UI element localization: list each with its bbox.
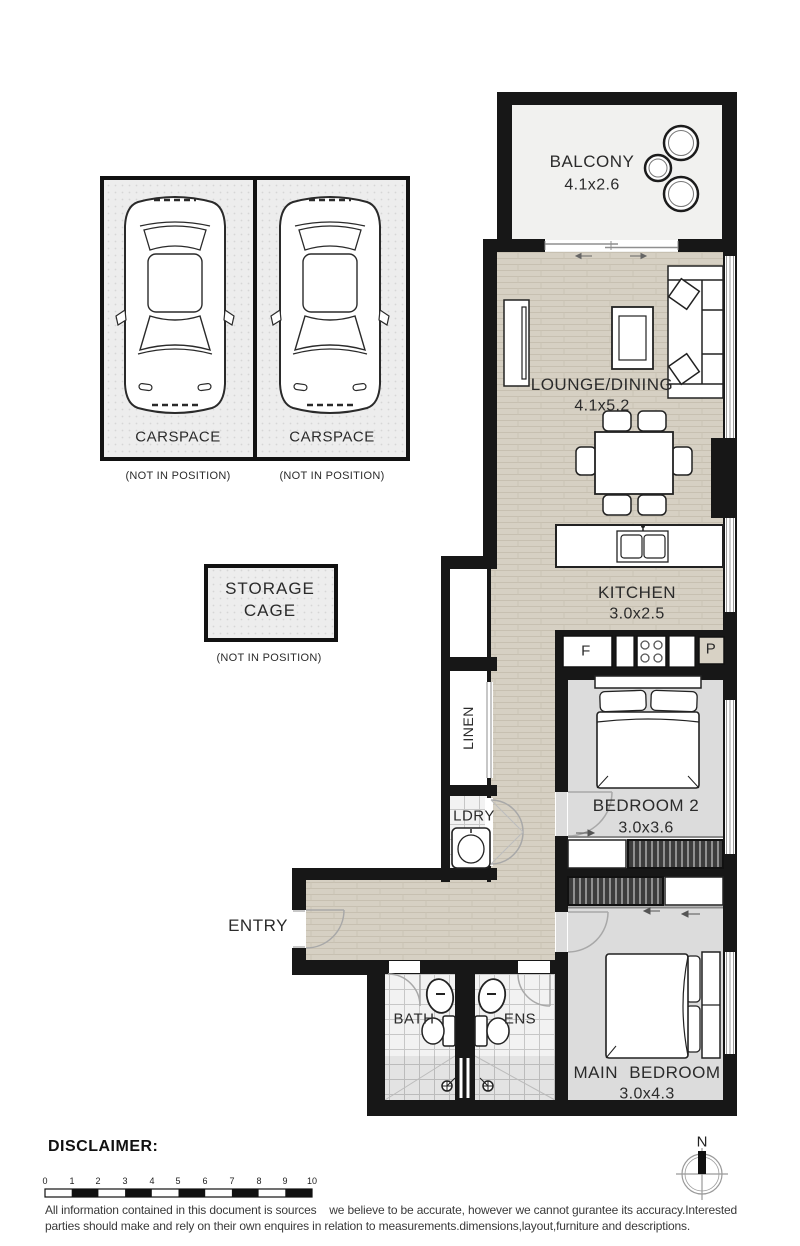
scale-tick: 4: [149, 1176, 154, 1186]
scale-tick: 7: [229, 1176, 234, 1186]
main-bedroom-dims: 3.0x4.3: [619, 1085, 674, 1106]
carspace1-note: (NOT IN POSITION): [125, 469, 230, 483]
scale-tick: 8: [256, 1176, 261, 1186]
scale-tick: 0: [42, 1176, 47, 1186]
north-label: N: [697, 1134, 708, 1151]
floor-plan-page: BALCONY 4.1x2.6 LOUNGE/DINING 4.1x5.2 KI…: [0, 0, 800, 1246]
lounge-dining-dims: 4.1x5.2: [574, 397, 629, 418]
storage-cage-label: STORAGE CAGE: [210, 578, 330, 622]
window: [725, 518, 735, 612]
cooktop: [637, 636, 666, 667]
fridge-label: F: [581, 641, 591, 661]
laundry-label: LDRY: [453, 806, 495, 826]
disclaimer-heading: DISCLAIMER:: [48, 1138, 158, 1156]
linen-door: [485, 682, 493, 778]
main-bed: [606, 952, 720, 1058]
window: [725, 952, 735, 1054]
kitchen-label: KITCHEN: [598, 582, 676, 604]
sofa: [668, 266, 723, 398]
kitchen-dims: 3.0x2.5: [609, 605, 664, 626]
main-bedroom-label: MAIN BEDROOM: [573, 1062, 720, 1084]
bedroom2-dims: 3.0x3.6: [618, 819, 673, 840]
balcony-dims: 4.1x2.6: [564, 176, 619, 197]
north-compass: [676, 1148, 728, 1200]
scale-tick: 6: [202, 1176, 207, 1186]
window: [725, 256, 735, 438]
bath-label: BATH: [394, 1009, 435, 1029]
disclaimer-line2: parties should make and rely on their ow…: [45, 1219, 690, 1233]
tv-unit: [504, 300, 529, 386]
laundry-tub: [452, 828, 490, 868]
carspace2-note: (NOT IN POSITION): [279, 469, 384, 483]
scale-tick: 5: [175, 1176, 180, 1186]
ens-label: ENS: [504, 1009, 536, 1029]
scale-tick: 2: [95, 1176, 100, 1186]
carspace2-label: CARSPACE: [289, 427, 374, 447]
window: [725, 700, 735, 854]
disclaimer-line1: All information contained in this docume…: [45, 1203, 737, 1217]
floor-plan-graphic: [0, 0, 800, 1246]
scale-tick: 1: [69, 1176, 74, 1186]
main-wardrobe: [568, 877, 723, 914]
scale-tick: 9: [282, 1176, 287, 1186]
cupboard: [450, 569, 487, 657]
scale-tick: 10: [307, 1176, 317, 1186]
scale-bar: [45, 1189, 312, 1197]
lounge-dining-label: LOUNGE/DINING: [531, 374, 674, 396]
balcony-label: BALCONY: [550, 151, 635, 173]
coffee-table: [612, 307, 653, 369]
entry-label: ENTRY: [228, 915, 288, 937]
carspace-area: [102, 178, 408, 459]
bedroom2-label: BEDROOM 2: [593, 795, 700, 817]
kitchen-island: [556, 525, 723, 568]
north-needle: [698, 1151, 706, 1174]
linen-label: LINEN: [459, 706, 477, 750]
carspace1-label: CARSPACE: [135, 427, 220, 447]
pantry-label: P: [706, 639, 717, 659]
storage-cage-note: (NOT IN POSITION): [216, 651, 321, 665]
scale-tick: 3: [122, 1176, 127, 1186]
